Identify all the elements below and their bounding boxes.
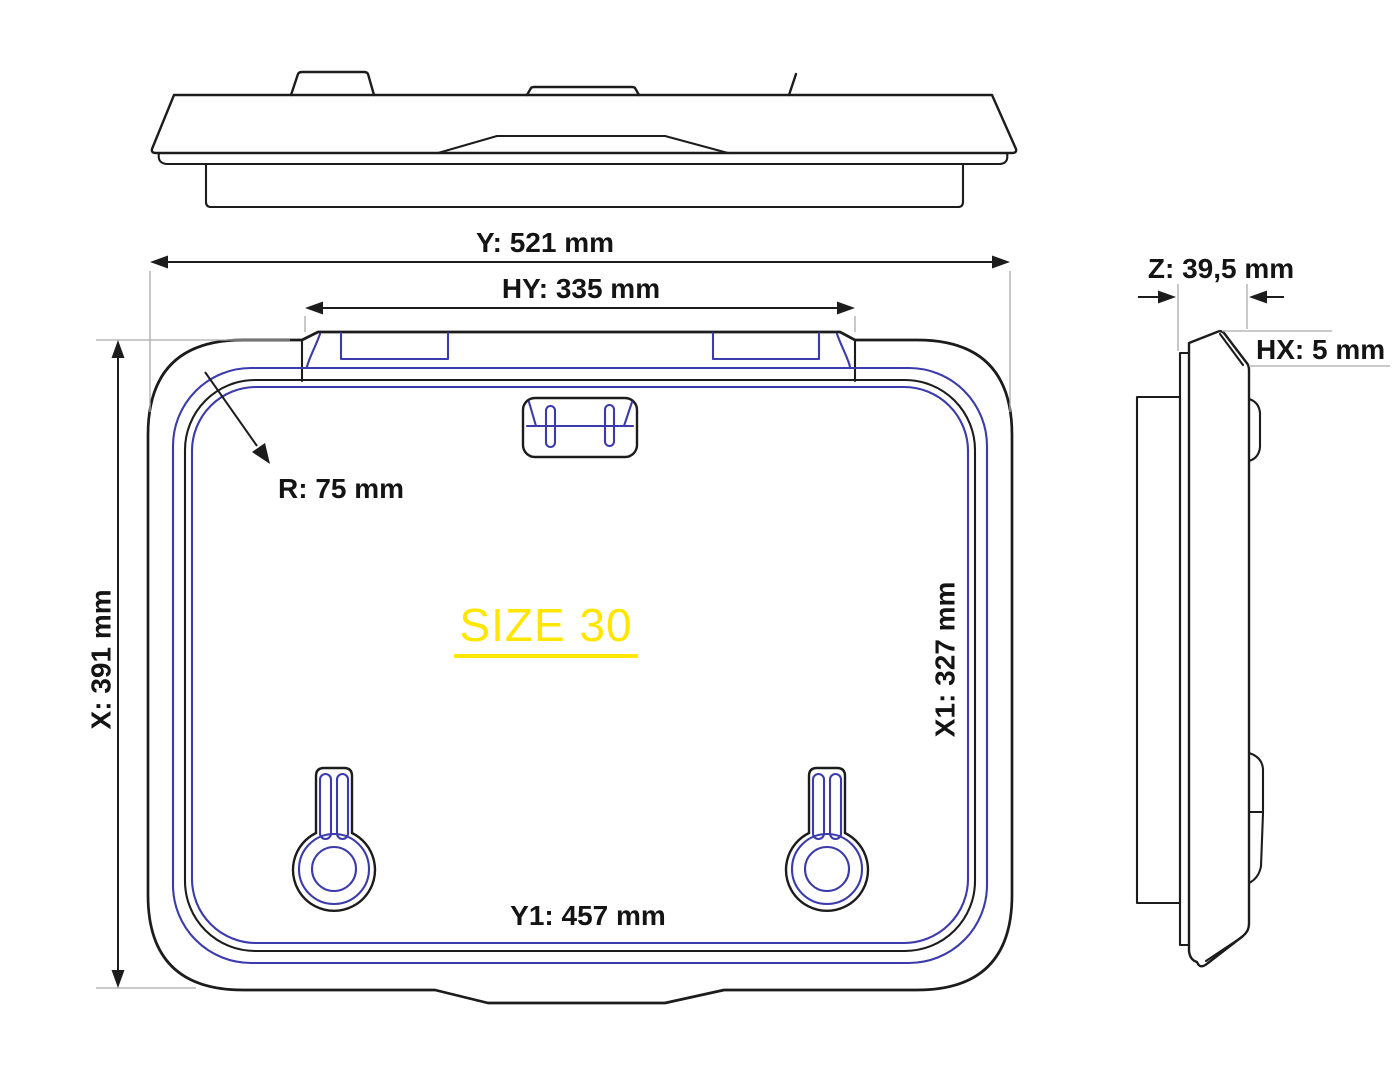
keyhole-circle: [786, 833, 868, 911]
extension-lines: [96, 271, 1390, 988]
keyhole-stem: [316, 768, 352, 833]
hy-arrow-right: [837, 302, 855, 315]
keyhole-latch-right: [786, 768, 868, 911]
r-arrowhead: [252, 443, 270, 464]
inner-panel-edge: [185, 380, 975, 951]
technical-drawing-canvas: Y: 521 mm HY: 335 mm X: 391 mm X1: 327 m…: [0, 0, 1395, 1080]
keyhole-hole: [805, 847, 849, 891]
bottom-lip-fold: [1206, 937, 1242, 961]
size-designation-text: SIZE 30: [454, 599, 637, 658]
handle-bump-lower: [1249, 813, 1263, 883]
frame-depth-rect: [1137, 397, 1180, 903]
latch-outline: [523, 398, 637, 457]
hinge-slot-right: [713, 333, 819, 359]
keyhole-hole: [312, 847, 356, 891]
latch-recess-lines: [438, 136, 728, 153]
center-latch: [523, 398, 637, 457]
right-hinge-bump: [789, 74, 796, 95]
lid-slab-outline: [1189, 331, 1249, 966]
z-arrow-left: [1158, 291, 1176, 304]
lid-skirt-strip: [1180, 353, 1189, 945]
y-arrow-right: [992, 256, 1010, 269]
dim-label-z: Z: 39,5 mm: [1071, 254, 1371, 285]
dimension-lines: [112, 256, 1285, 989]
handle-bump-upper: [1249, 753, 1263, 811]
x-arrow-bottom: [112, 970, 125, 988]
keyhole-slot-left: [813, 774, 824, 839]
latch-pull-bump: [1249, 399, 1260, 461]
dim-label-r: R: 75 mm: [278, 474, 404, 505]
dim-label-hx: HX: 5 mm: [1256, 335, 1385, 366]
x-arrow-top: [112, 340, 125, 358]
keyhole-circle: [293, 833, 375, 911]
y-arrow-left: [150, 256, 168, 269]
z-arrow-right: [1249, 291, 1267, 304]
dim-label-x1: X1: 327 mm: [931, 549, 962, 769]
hinge-slot-left: [341, 333, 448, 359]
hy-arrow-left: [305, 302, 323, 315]
latch-right-slant: [624, 402, 632, 426]
dim-label-y: Y: 521 mm: [395, 228, 695, 259]
keyhole-slot-right: [337, 774, 348, 839]
top-profile-view: [152, 72, 1016, 207]
hinge-arm-right: [837, 334, 850, 367]
keyhole-stem: [809, 768, 845, 833]
hinge-arm-left: [307, 334, 320, 367]
latch-left-slant: [529, 402, 536, 426]
keyhole-slot-right: [830, 774, 841, 839]
dim-label-y1: Y1: 457 mm: [438, 901, 738, 932]
side-view: [1137, 331, 1263, 966]
keyhole-slot-left: [320, 774, 331, 839]
keyhole-latch-left: [293, 768, 375, 911]
gasket-line-inner: [192, 387, 968, 943]
lid-lip-line: [159, 153, 1008, 164]
lid-body-outline: [152, 95, 1016, 153]
dim-label-hy: HY: 335 mm: [431, 274, 731, 305]
keyhole-ring: [792, 834, 862, 904]
left-hinge-bump: [291, 72, 374, 95]
top-chamfer-fold: [1220, 334, 1243, 365]
keyhole-ring: [299, 834, 369, 904]
size-designation: SIZE 30: [396, 598, 696, 652]
flange-box: [206, 164, 963, 207]
dim-label-x: X: 391 mm: [87, 549, 118, 769]
